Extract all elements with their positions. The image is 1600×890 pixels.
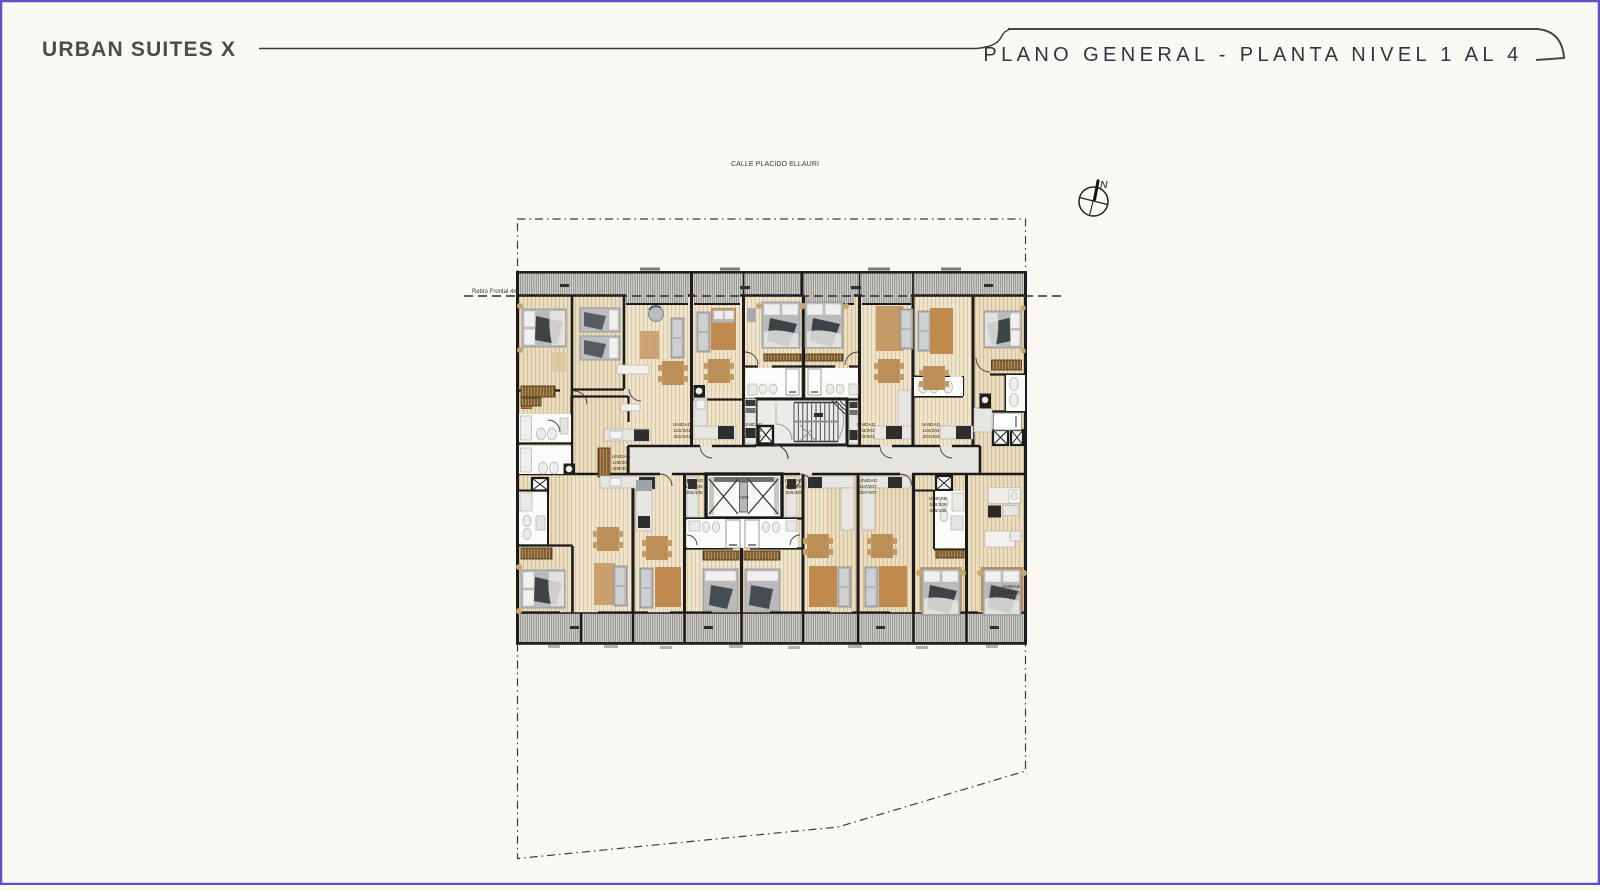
svg-text:110/210: 110/210	[1003, 590, 1020, 596]
svg-text:302/402: 302/402	[744, 434, 762, 440]
svg-text:301/401: 301/401	[673, 434, 691, 440]
svg-text:303/403: 303/403	[857, 434, 875, 440]
svg-text:PLANO GENERAL - PLANTA NIVEL 1: PLANO GENERAL - PLANTA NIVEL 1 AL 4	[983, 44, 1522, 66]
svg-text:101/201: 101/201	[673, 428, 691, 434]
svg-text:309/409: 309/409	[612, 466, 630, 472]
svg-text:AIRE: AIRE	[739, 495, 749, 500]
svg-text:UNIDAD: UNIDAD	[922, 422, 941, 428]
svg-text:UNIDAD: UNIDAD	[744, 422, 763, 428]
svg-text:109/209: 109/209	[612, 460, 630, 466]
svg-text:UNIDAD: UNIDAD	[673, 422, 692, 428]
svg-text:305/405: 305/405	[685, 490, 703, 496]
svg-text:UNIDAD: UNIDAD	[859, 478, 878, 484]
svg-text:CALLE PLACIDO ELLAURI: CALLE PLACIDO ELLAURI	[731, 161, 819, 168]
svg-text:107/207: 107/207	[859, 484, 877, 490]
svg-text:102/202: 102/202	[744, 428, 762, 434]
svg-text:UNIDAD: UNIDAD	[612, 454, 631, 460]
svg-text:Retiro Frontal 4m: Retiro Frontal 4m	[472, 289, 518, 295]
svg-text:UNIDAD: UNIDAD	[785, 478, 804, 484]
svg-text:105/205: 105/205	[685, 484, 703, 490]
svg-text:308/408: 308/408	[929, 508, 947, 514]
svg-text:306/406: 306/406	[785, 490, 803, 496]
svg-text:106/206: 106/206	[785, 484, 803, 490]
svg-text:N: N	[1100, 179, 1108, 191]
svg-text:UNIDAD: UNIDAD	[857, 422, 876, 428]
svg-text:UNIDAD: UNIDAD	[929, 496, 948, 502]
svg-text:108/208: 108/208	[929, 502, 947, 508]
svg-text:307/407: 307/407	[859, 490, 877, 496]
svg-text:UNIDAD: UNIDAD	[1002, 584, 1021, 590]
svg-text:103/203: 103/203	[857, 428, 875, 434]
svg-text:304/404: 304/404	[922, 434, 940, 440]
svg-text:104/204: 104/204	[922, 428, 940, 434]
svg-text:URBAN SUITES X: URBAN SUITES X	[42, 38, 236, 61]
